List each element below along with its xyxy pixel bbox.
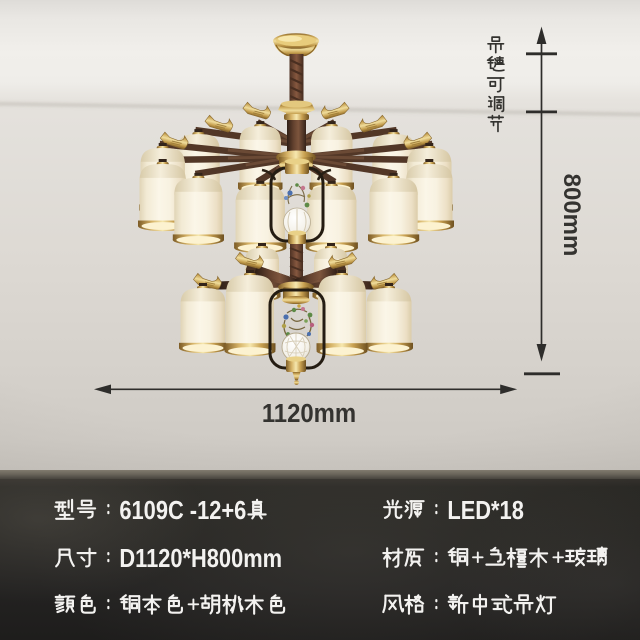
svg-text:1120mm: 1120mm: [262, 399, 356, 428]
svg-text:LED*18: LED*18: [447, 496, 523, 525]
svg-text:800mm: 800mm: [558, 174, 585, 257]
svg-text:D1120*H800mm: D1120*H800mm: [119, 544, 282, 573]
svg-text:6109C -12+6: 6109C -12+6: [119, 496, 246, 525]
